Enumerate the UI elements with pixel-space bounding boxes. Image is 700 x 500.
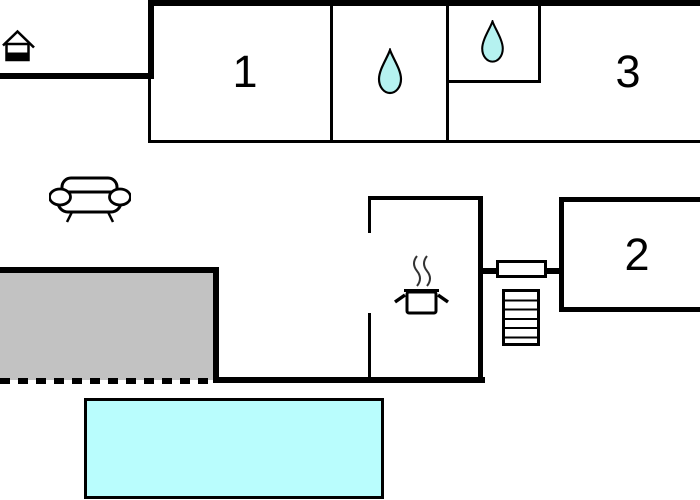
terrace-right-wall: [213, 267, 219, 383]
room-2-label: 2: [615, 228, 659, 280]
swimming-pool: [84, 398, 384, 499]
radiator-left-stub-wall: [481, 268, 497, 274]
water-drop-icon: [377, 48, 403, 95]
kitchen-right-wall: [478, 196, 483, 382]
bathroom-room3-divider-wall: [446, 0, 449, 143]
steam-icon: [414, 256, 420, 286]
radiator-block: [496, 260, 547, 278]
kitchen-bottom-wall: [213, 377, 485, 383]
steam-icon: [424, 256, 430, 286]
terrace-top-wall: [0, 267, 219, 273]
cooking-pot-icon: [392, 254, 450, 318]
room-1-label: 1: [223, 45, 267, 97]
floorplan-canvas: 1 3 2: [0, 0, 700, 500]
building-top-wall: [148, 0, 700, 6]
boundary-wall: [0, 73, 149, 79]
terrace-dashed-edge: [0, 378, 215, 384]
sofa-icon: [49, 176, 131, 224]
kitchen-left-wall-lower: [368, 313, 371, 382]
house-icon: [1, 29, 37, 65]
water-drop-icon: [480, 20, 505, 63]
room1-bathroom-divider-wall: [330, 0, 333, 143]
small-bathroom-right-wall: [538, 0, 541, 83]
kitchen-left-wall-upper: [368, 196, 371, 233]
kitchen-top-wall: [368, 196, 483, 200]
room-3-label: 3: [606, 45, 650, 97]
building-bottom-wall: [148, 140, 700, 143]
building-left-wall: [148, 79, 151, 143]
terrace-area: [0, 270, 216, 380]
stairs-icon: [502, 289, 540, 346]
building-left-wall-thick: [148, 0, 154, 79]
small-bathroom-bottom-wall: [446, 80, 541, 83]
